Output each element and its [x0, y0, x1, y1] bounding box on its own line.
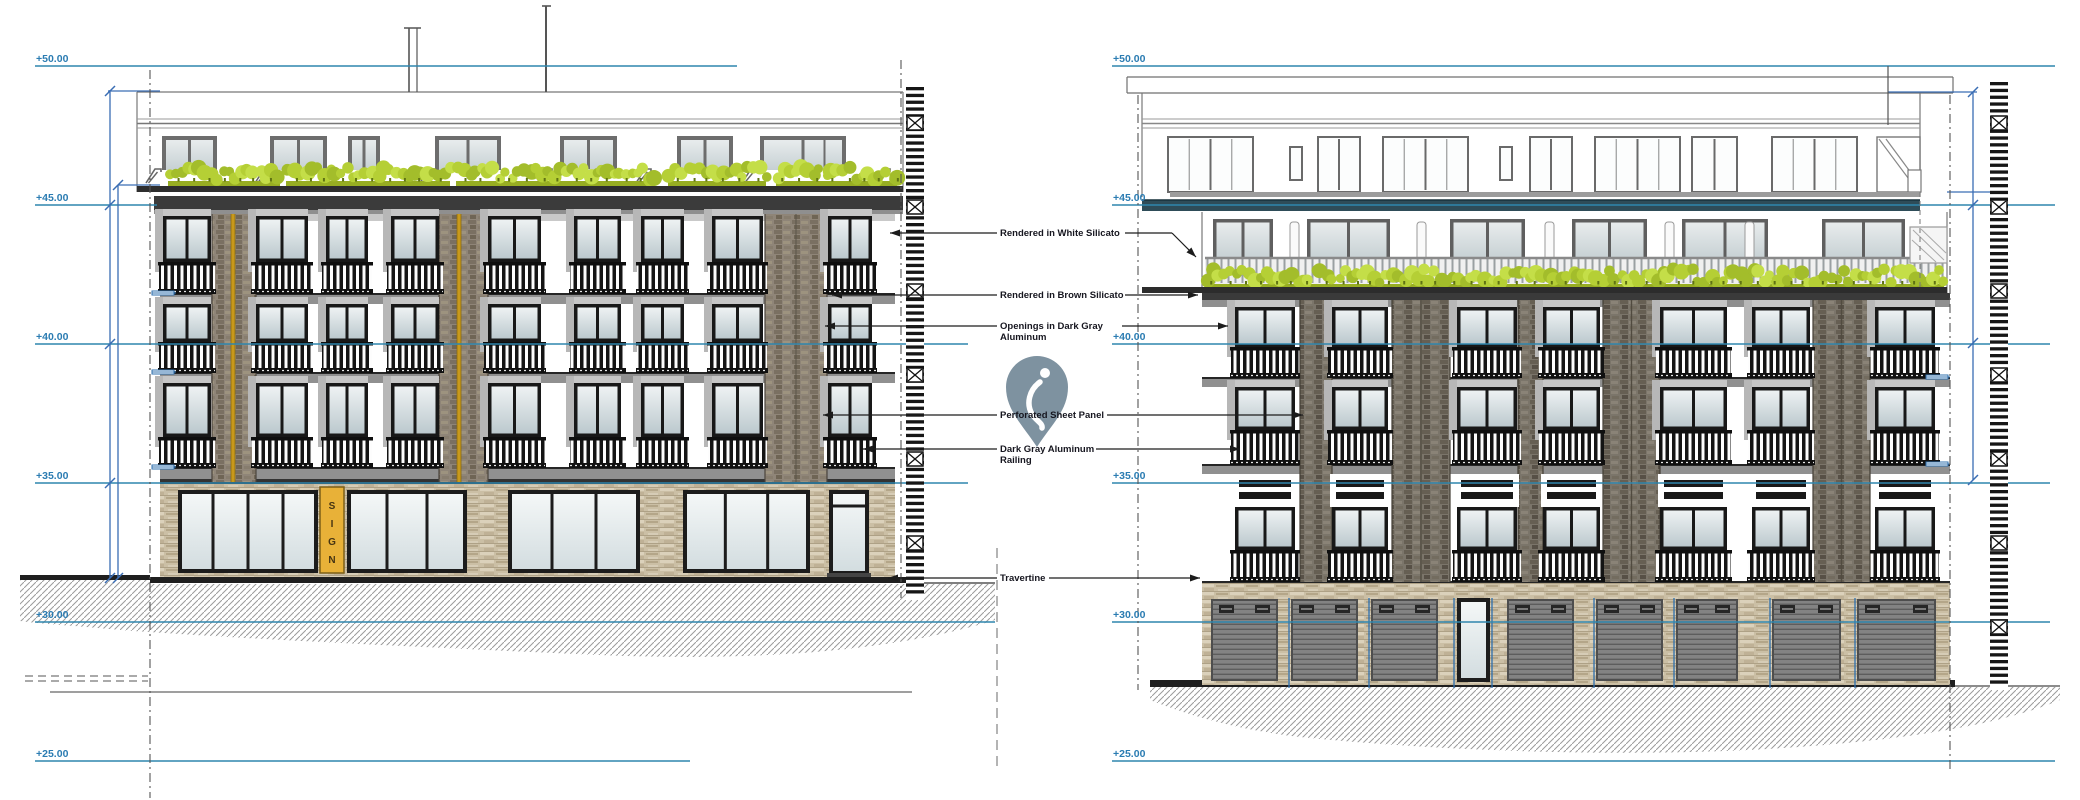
- window-bay: [1324, 300, 1393, 378]
- window-bay: [1867, 380, 1940, 465]
- terrace-side-panel: [1910, 227, 1947, 263]
- perforated-panel-column: [765, 214, 827, 483]
- window-bay: [1535, 300, 1605, 378]
- window-bay: [248, 209, 313, 294]
- entrance-door: [1457, 598, 1490, 682]
- perforated-panel-column: [1603, 300, 1660, 582]
- annotation-dark-gray-aluminum-railing: Dark Gray Aluminum: [1000, 444, 1094, 455]
- left-penthouse: [137, 6, 905, 192]
- window-bay: [383, 297, 444, 373]
- window-bay: [1535, 380, 1605, 465]
- storefront-window: [347, 490, 467, 573]
- level-staff: [906, 87, 924, 600]
- window-bay: [155, 209, 216, 294]
- window-bay: [480, 209, 546, 294]
- right-white-levels: [1127, 77, 1953, 211]
- terrace-door: [1450, 219, 1525, 263]
- window-bay: [820, 376, 877, 468]
- terrace-door: [1822, 219, 1905, 263]
- window-bay: [318, 376, 373, 468]
- roof-hedge: [452, 161, 662, 187]
- white-level-window: [1318, 137, 1360, 192]
- window-bay: [248, 376, 313, 468]
- white-level-window: [1772, 137, 1857, 192]
- window-bay: [1538, 474, 1605, 582]
- window-bay: [1324, 380, 1393, 465]
- window-bay: [1744, 380, 1815, 465]
- elevation-marker-label: +35.00: [1113, 470, 1146, 482]
- garage-door: [1372, 600, 1437, 680]
- terrace-door: [1682, 219, 1768, 263]
- white-level-window: [1530, 137, 1572, 192]
- elevation-marker-label: +30.00: [1113, 609, 1146, 621]
- annotation-openings-dark-gray-aluminum: Aluminum: [1000, 332, 1046, 343]
- window-bay: [1652, 300, 1732, 378]
- perforated-panel-column: [1392, 300, 1450, 582]
- elevation-marker-label: +45.00: [36, 192, 69, 204]
- window-bay: [318, 209, 373, 294]
- white-level-window: [1595, 137, 1680, 192]
- yellow-stripe: [457, 214, 461, 483]
- garage-door: [1677, 600, 1737, 680]
- window-bay: [566, 297, 626, 373]
- elevation-marker-label: +40.00: [1113, 331, 1146, 343]
- perforated-panel-column: [1813, 300, 1870, 582]
- garage-door: [1212, 600, 1277, 680]
- terrace-door: [1572, 219, 1647, 263]
- elevation-drawing-sheet: +50.00 +45.00 +40.00 +35.00 +30.00 +25.0…: [0, 0, 2080, 800]
- white-level-window: [1168, 137, 1253, 192]
- window-bay: [383, 209, 444, 294]
- window-bay: [383, 376, 444, 468]
- white-level-window: [1383, 137, 1468, 192]
- garage-door: [1858, 600, 1935, 680]
- window-bay: [1449, 380, 1522, 465]
- storefront-window: [178, 490, 318, 573]
- right-building-elevation: [1127, 77, 1953, 688]
- annotation-travertine: Travertine: [1000, 573, 1045, 584]
- elevation-marker-label: +50.00: [36, 53, 69, 65]
- window-bay: [704, 297, 768, 373]
- white-level-window: [1500, 147, 1512, 180]
- window-bay: [1744, 300, 1815, 378]
- elevation-marker-label: +35.00: [36, 470, 69, 482]
- window-bay: [820, 209, 877, 294]
- elevation-marker-label: +45.00: [1113, 192, 1146, 204]
- annotation-openings-dark-gray-aluminum: Openings in Dark Gray: [1000, 321, 1104, 332]
- right-ground-floor: [1202, 592, 1950, 688]
- window-bay: [1227, 380, 1300, 465]
- annotation-perforated-sheet-panel: Perforated Sheet Panel: [1000, 410, 1104, 421]
- yellow-stripe: [231, 214, 235, 483]
- window-bay: [1230, 474, 1300, 582]
- window-bay: [820, 297, 877, 373]
- annotation-rendered-white-silicato: Rendered in White Silicato: [1000, 228, 1120, 239]
- window-bay: [155, 297, 216, 373]
- window-bay: [1449, 300, 1522, 378]
- window-bay: [1867, 300, 1940, 378]
- window-bay: [566, 376, 626, 468]
- window-bay: [633, 376, 689, 468]
- elevation-marker-label: +25.00: [1113, 748, 1146, 760]
- storefront-sign-letter: I: [331, 519, 334, 530]
- elevation-marker-label: +30.00: [36, 609, 69, 621]
- right-terrace-level: [1142, 212, 1948, 293]
- window-bay: [1747, 474, 1815, 582]
- window-bay: [704, 209, 768, 294]
- garage-door: [1597, 600, 1662, 680]
- storefront-window: [508, 490, 640, 573]
- window-bay: [1327, 474, 1393, 582]
- annotation-dark-gray-aluminum-railing: Railing: [1000, 455, 1032, 466]
- garage-door: [1292, 600, 1357, 680]
- terrace-door: [1307, 219, 1390, 263]
- white-level-window: [1692, 137, 1737, 192]
- window-bay: [633, 297, 689, 373]
- window-bay: [1655, 474, 1732, 582]
- garage-door: [1508, 600, 1573, 680]
- white-level-window: [1290, 147, 1302, 180]
- storefront-sign-letter: S: [329, 501, 336, 512]
- storefront-sign-letter: G: [328, 537, 336, 548]
- terrace-door: [1213, 219, 1273, 263]
- elevation-drawing-canvas: +50.00 +45.00 +40.00 +35.00 +30.00 +25.0…: [0, 0, 2080, 800]
- location-pin-icon: [1006, 356, 1068, 447]
- window-bay: [633, 209, 689, 294]
- garage-door: [1773, 600, 1840, 680]
- elevation-marker-label: +40.00: [36, 331, 69, 343]
- storefront-window: [683, 490, 810, 573]
- window-bay: [1870, 474, 1940, 582]
- left-ground-floor: [160, 483, 895, 577]
- window-bay: [480, 297, 546, 373]
- elevation-marker-label: +25.00: [36, 748, 69, 760]
- window-bay: [1227, 300, 1300, 378]
- annotation-rendered-brown-silicato: Rendered in Brown Silicato: [1000, 290, 1124, 301]
- level-staff: [1990, 82, 2008, 690]
- window-bay: [480, 376, 546, 468]
- left-building-elevation: [137, 6, 905, 577]
- elevation-marker-label: +50.00: [1113, 53, 1146, 65]
- roof-bulkhead: [1877, 137, 1921, 192]
- entrance-door: [827, 490, 871, 577]
- window-bay: [1652, 380, 1732, 465]
- window-bay: [1452, 474, 1522, 582]
- window-bay: [566, 209, 626, 294]
- storefront-sign-letter: N: [328, 555, 335, 566]
- window-bay: [704, 376, 768, 468]
- window-bay: [318, 297, 373, 373]
- window-bay: [155, 376, 216, 468]
- window-bay: [248, 297, 313, 373]
